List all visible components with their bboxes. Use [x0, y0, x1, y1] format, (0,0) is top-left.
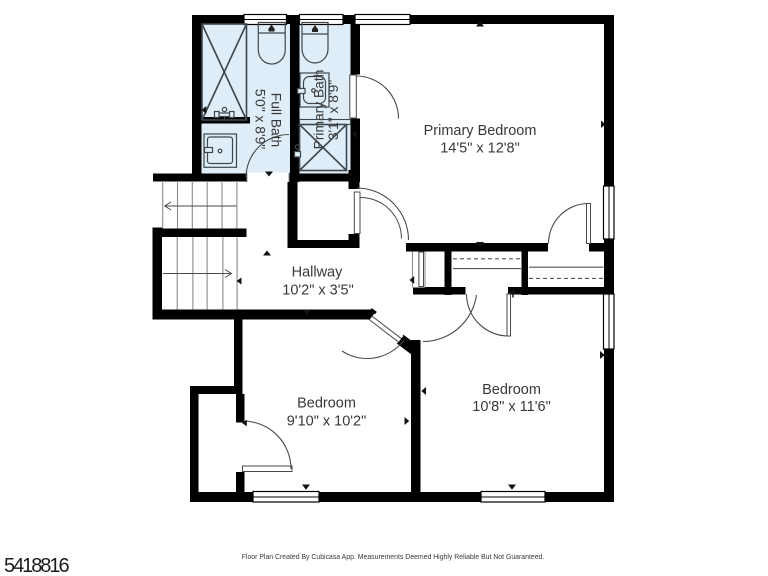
svg-text:14'5" x 12'8": 14'5" x 12'8"	[440, 141, 520, 157]
svg-text:Primary Bath: Primary Bath	[312, 70, 327, 150]
svg-text:9'10" x 10'2": 9'10" x 10'2"	[287, 414, 367, 430]
svg-text:Primary Bedroom: Primary Bedroom	[424, 123, 537, 139]
svg-text:10'8" x 11'6": 10'8" x 11'6"	[472, 399, 550, 415]
svg-text:5418816: 5418816	[4, 555, 69, 576]
svg-text:10'2" x 3'5": 10'2" x 3'5"	[282, 283, 353, 299]
svg-text:Full Bath: Full Bath	[268, 93, 283, 147]
svg-text:3'1" x 8'9": 3'1" x 8'9"	[326, 80, 341, 140]
svg-text:Bedroom: Bedroom	[297, 396, 356, 412]
svg-text:5'0" x 8'9": 5'0" x 8'9"	[252, 89, 267, 149]
svg-text:Floor Plan Created By Cubicasa: Floor Plan Created By Cubicasa App. Meas…	[242, 554, 545, 561]
svg-text:Hallway: Hallway	[292, 265, 344, 281]
svg-text:Bedroom: Bedroom	[482, 382, 541, 398]
